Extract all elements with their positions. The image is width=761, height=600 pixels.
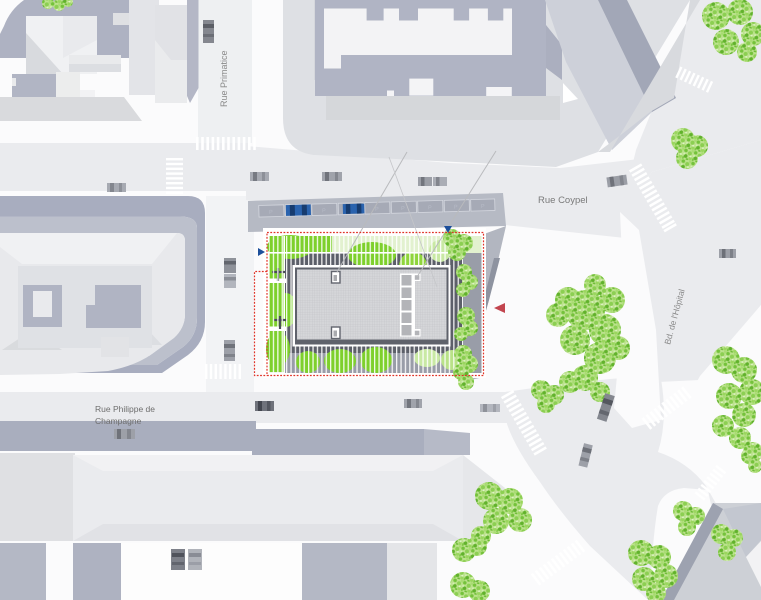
- svg-text:P: P: [401, 206, 405, 212]
- svg-text:P: P: [481, 204, 485, 210]
- svg-text:Rue Philippe de: Rue Philippe de: [95, 404, 155, 414]
- svg-text:Rue Coypel: Rue Coypel: [538, 195, 588, 206]
- svg-text:P: P: [322, 208, 326, 214]
- svg-text:P: P: [428, 205, 432, 211]
- svg-text:Champagne: Champagne: [95, 416, 142, 426]
- svg-text:Rue Primatice: Rue Primatice: [219, 50, 229, 107]
- svg-text:P: P: [375, 207, 379, 213]
- svg-text:P: P: [454, 204, 458, 210]
- svg-text:P: P: [269, 210, 273, 216]
